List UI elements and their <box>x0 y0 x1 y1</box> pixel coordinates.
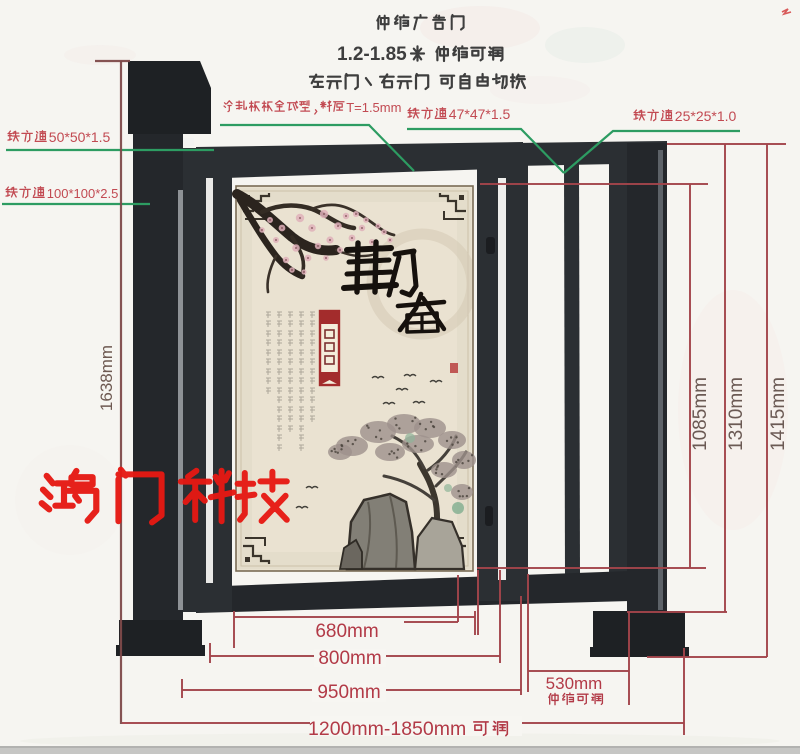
svg-text:100*100*2.5: 100*100*2.5 <box>47 186 119 201</box>
svg-text:25*25*1.0: 25*25*1.0 <box>675 108 737 124</box>
svg-text:680mm: 680mm <box>315 621 378 642</box>
svg-text:1638mm: 1638mm <box>97 345 116 411</box>
svg-text:800mm: 800mm <box>318 648 381 669</box>
svg-text:T=1.5mm: T=1.5mm <box>346 100 401 115</box>
svg-text:1310mm: 1310mm <box>726 377 747 451</box>
svg-text:530mm: 530mm <box>546 674 603 693</box>
svg-text:1200mm-1850mm: 1200mm-1850mm <box>308 718 466 740</box>
svg-text:1.2-1.85: 1.2-1.85 <box>337 44 407 65</box>
svg-text:1415mm: 1415mm <box>768 377 789 451</box>
svg-text:1085mm: 1085mm <box>690 377 711 451</box>
svg-text:47*47*1.5: 47*47*1.5 <box>449 106 511 122</box>
svg-text:50*50*1.5: 50*50*1.5 <box>49 129 111 145</box>
svg-text:950mm: 950mm <box>317 682 380 703</box>
